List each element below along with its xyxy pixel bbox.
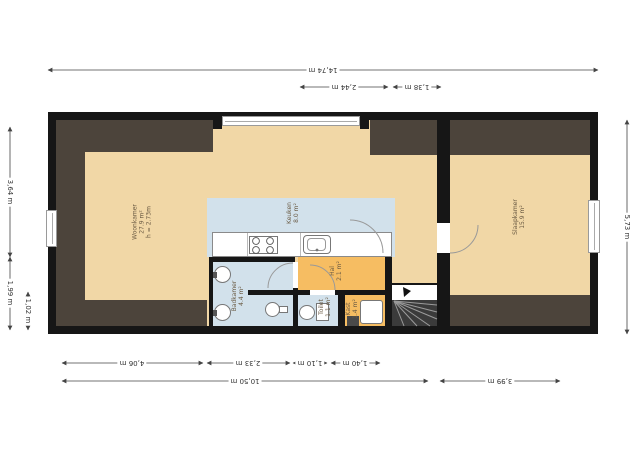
dim-bottom-total-left: 10,50 m [228,377,261,385]
sink-drain [316,249,319,252]
door-arcs [268,220,478,290]
dimension-lines [10,70,627,381]
dim-left-seg3: 1,02 m [24,297,32,326]
room-label-woonkamer: Woonkamer 27.9 m² h = 2.73m [132,204,153,240]
room-area: 27.9 m² [139,204,146,240]
room-name: Toilet [318,297,325,317]
stairs-treads [394,301,437,326]
dim-top-seg1: 2,44 m [330,83,359,91]
room-area: 8.0 m² [293,202,300,224]
dim-right-total: 5,73 m [623,213,631,242]
room-label-badkamer: Badkamer 4.4 m² [231,281,245,312]
room-name: Hal [329,261,336,281]
room-area: 2.1 m² [336,261,343,281]
room-name: Badkamer [231,281,238,312]
dim-left-seg1: 3,64 m [6,178,14,207]
dim-bottom-seg4: 1,40 m [341,359,370,367]
room-name: Slaapkamer [512,199,519,235]
room-label-slaapkamer: Slaapkamer 15.9 m² [512,199,526,235]
room-label-kast: Kast 1.4 m² [345,299,359,319]
dim-bottom-seg1: 4,06 m [118,359,147,367]
dim-bottom-total-right: 3,99 m [486,377,515,385]
room-area: 1.1 m² [325,297,332,317]
room-name: Keuken [286,202,293,224]
room-label-toilet: Toilet 1.1 m² [318,297,332,317]
room-name: Kast [345,299,352,319]
dim-bottom-seg2: 2,33 m [234,359,263,367]
room-name: Woonkamer [132,204,139,240]
stove-burners [253,238,274,254]
room-label-keuken: Keuken 8.0 m² [286,202,300,224]
room-area: 4.4 m² [238,281,245,312]
stairs-arrow-icon [403,287,411,297]
dim-left-seg2: 1,99 m [6,279,14,308]
room-area: 1.4 m² [352,299,359,319]
room-ceiling-height: h = 2.73m [146,204,153,240]
floorplan-canvas: Woonkamer 27.9 m² h = 2.73m Keuken 8.0 m… [0,0,640,450]
room-label-hal: Hal 2.1 m² [329,261,343,281]
room-area: 15.9 m² [519,199,526,235]
dim-top-seg2: 1,38 m [403,83,432,91]
dim-top-total: 14,74 m [306,66,339,74]
dim-bottom-seg3: 1,10 m [296,359,325,367]
